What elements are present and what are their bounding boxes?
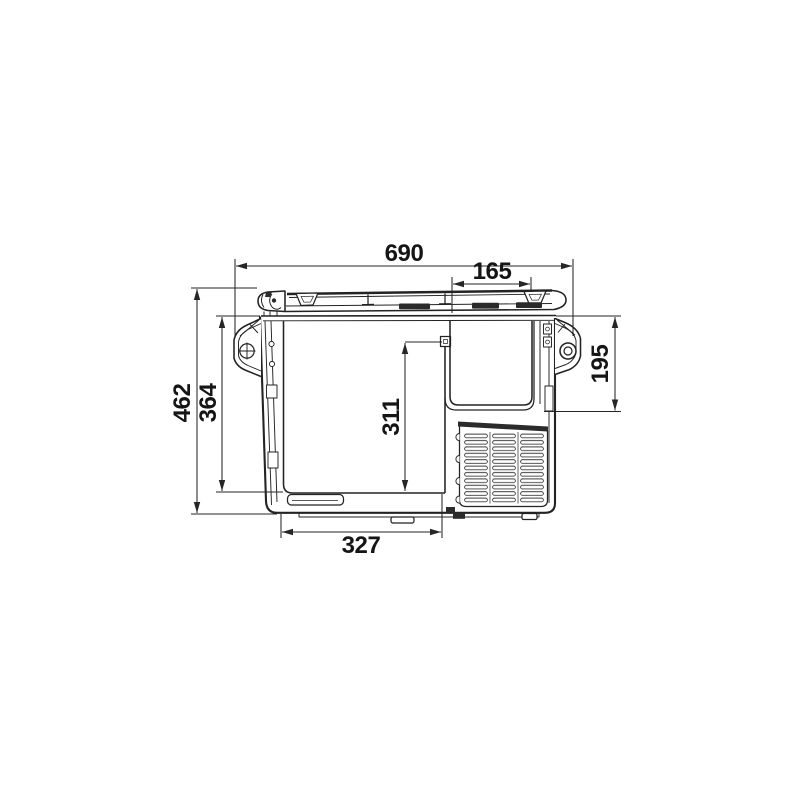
- arrowhead-right: [430, 529, 441, 535]
- control-recess: [445, 321, 534, 410]
- compressor-foot-dark-1: [446, 507, 455, 513]
- door-seam: [284, 321, 451, 505]
- cooler-figure: [234, 291, 581, 524]
- dim-label-recess-depth: 195: [587, 345, 614, 384]
- arrowhead-top: [219, 317, 225, 328]
- lid-seal-block-2: [472, 303, 499, 309]
- rim-line-upper: [261, 316, 556, 317]
- arrowhead-right: [519, 281, 530, 287]
- grille-slats-col-1: [464, 433, 488, 504]
- grip-tray: [288, 495, 344, 506]
- grille-bump-4: [456, 496, 460, 503]
- lid-seal-block-1: [399, 304, 430, 310]
- arrowhead-left: [453, 281, 464, 287]
- foot-center: [391, 517, 414, 523]
- dim-label-recess-width: 165: [473, 258, 512, 285]
- grille-top-band: [458, 422, 548, 432]
- arrowhead-top: [402, 343, 408, 354]
- lid-seal-block-3: [516, 302, 542, 308]
- arrowhead-left: [236, 263, 247, 269]
- grille-bump-1: [456, 434, 460, 441]
- left-wall-clip-1: [267, 385, 278, 398]
- lid-top-edge: [287, 291, 552, 295]
- grille-bump-2: [456, 456, 460, 463]
- top-rim: [261, 312, 556, 321]
- arrowhead-top: [612, 317, 618, 328]
- right-wall-clip-2: [544, 337, 552, 347]
- compressor-foot-dark-2: [453, 513, 465, 519]
- left-handle: [234, 319, 261, 377]
- recess-inner-wall: [450, 321, 532, 405]
- hinge-pin: [272, 298, 276, 302]
- arrowhead-bottom: [612, 400, 618, 411]
- left-wall-clip-2: [268, 452, 278, 468]
- right-wall-clip-1: [544, 324, 552, 334]
- base-feet: [299, 507, 539, 523]
- vent-grille: [456, 422, 548, 507]
- lid-latch-cup-left: [296, 293, 318, 306]
- dim-label-overall-height: 462: [169, 384, 196, 423]
- right-wall-clip-3: [545, 386, 553, 411]
- grille-bump-3: [456, 478, 460, 485]
- dim-label-body-height: 364: [195, 383, 222, 423]
- dim-label-door-height: 311: [378, 398, 405, 436]
- dim-label-base-width: 327: [342, 532, 381, 559]
- rim-line-lower: [263, 320, 554, 321]
- dimension-door-height: 311: [378, 342, 442, 491]
- door-left-bottom-seam: [284, 321, 446, 493]
- left-wall-screw-1: [269, 341, 274, 346]
- handle-hole-outer: [560, 343, 576, 359]
- technical-drawing-svg: 690 165 462 364: [0, 0, 800, 800]
- handle-hole-icon: [560, 343, 576, 359]
- arrowhead-top: [194, 289, 200, 300]
- arrowhead-bottom: [219, 480, 225, 491]
- left-wall-screw-2: [269, 361, 274, 366]
- arrowhead-left: [282, 529, 293, 535]
- arrowhead-bottom: [194, 502, 200, 513]
- arrowhead-bottom: [402, 480, 408, 491]
- recess-outer-wall: [445, 321, 534, 410]
- drawing-canvas: 690 165 462 364: [0, 0, 800, 800]
- foot-right: [522, 514, 537, 520]
- dimension-overall-width: 690: [235, 240, 573, 336]
- arrowhead-right: [561, 263, 572, 269]
- lid-latch-cup-right: [524, 291, 546, 304]
- grille-slats-col-2: [492, 433, 516, 504]
- dim-label-overall-width: 690: [385, 240, 424, 267]
- grille-slats-col-3: [520, 433, 545, 504]
- cooler-lid: [258, 291, 566, 312]
- left-wall-inner-line-2: [271, 321, 277, 502]
- right-handle: [555, 319, 581, 375]
